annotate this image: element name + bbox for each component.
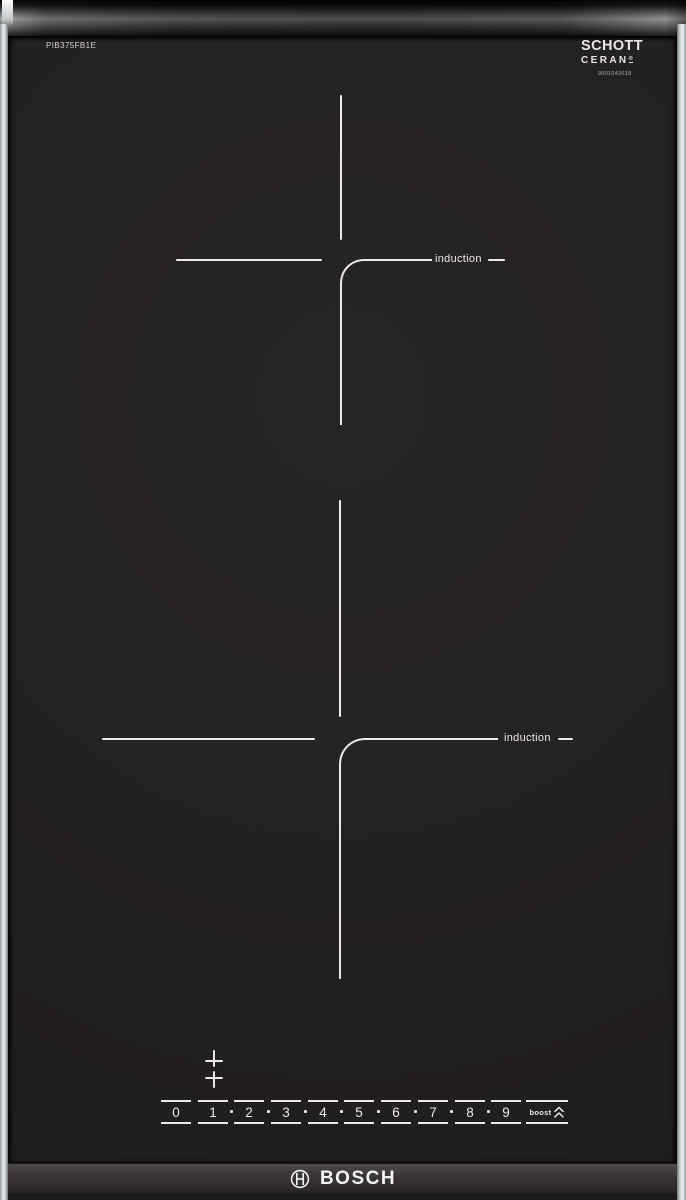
rear-zone-horizontal-left-line xyxy=(176,259,322,261)
registered-mark: ® xyxy=(629,56,633,64)
front-zone-label: induction xyxy=(504,733,551,744)
separator-dot xyxy=(450,1110,453,1113)
front-zone-horizontal-right-dash xyxy=(558,738,573,740)
level-key-8[interactable]: 8 xyxy=(453,1100,487,1124)
rear-zone-label: induction xyxy=(435,254,482,265)
level-key-1[interactable]: 1 xyxy=(196,1100,230,1124)
level-key-6[interactable]: 6 xyxy=(379,1100,413,1124)
model-number-label: PIB375FB1E xyxy=(46,41,96,50)
bosch-wordmark: BOSCH xyxy=(320,1168,396,1190)
boost-label: boost xyxy=(530,1108,552,1117)
rear-zone-vertical-top-line xyxy=(340,95,342,240)
separator-dot xyxy=(377,1110,380,1113)
timer-key[interactable] xyxy=(416,1048,448,1088)
separator-dot xyxy=(414,1110,417,1113)
bosch-induction-hob: PIB375FB1E SCHOTT CERAN® 9001043618 indu… xyxy=(0,0,686,1200)
serial-number-label: 9001043618 xyxy=(598,71,632,77)
schott-ceran-logo: SCHOTT CERAN® xyxy=(581,39,641,66)
separator-dot xyxy=(487,1110,490,1113)
front-zone-corner-line xyxy=(339,738,498,979)
front-zone-vertical-top-line xyxy=(339,500,341,717)
left-trim xyxy=(0,24,8,1200)
level-key-9[interactable]: 9 xyxy=(489,1100,523,1124)
rear-zone-horizontal-right-dash xyxy=(488,259,505,261)
top-trim xyxy=(0,0,686,36)
level-key-2[interactable]: 2 xyxy=(232,1100,266,1124)
zone-select-right-key[interactable] xyxy=(458,1046,486,1092)
glass-surface xyxy=(8,36,677,1163)
separator-dot xyxy=(230,1110,233,1113)
boost-button[interactable]: boost xyxy=(525,1100,569,1124)
bottom-trim: BOSCH xyxy=(8,1163,677,1194)
right-trim xyxy=(677,24,686,1200)
level-key-0[interactable]: 0 xyxy=(159,1100,193,1124)
rear-zone-corner-line xyxy=(340,259,432,425)
schott-logo-line1: SCHOTT xyxy=(581,39,641,54)
level-key-3[interactable]: 3 xyxy=(269,1100,303,1124)
level-key-5[interactable]: 5 xyxy=(342,1100,376,1124)
bosch-symbol-icon xyxy=(289,1168,311,1190)
bottom-edge xyxy=(8,1193,677,1200)
level-key-7[interactable]: 7 xyxy=(416,1100,450,1124)
separator-dot xyxy=(340,1110,343,1113)
separator-dot xyxy=(267,1110,270,1113)
zone-select-left-key[interactable] xyxy=(200,1046,228,1092)
double-chevron-up-icon xyxy=(554,1106,564,1118)
power-button[interactable] xyxy=(113,1098,161,1126)
front-zone-horizontal-left-line xyxy=(102,738,315,740)
schott-logo-line2: CERAN® xyxy=(581,56,641,66)
level-key-4[interactable]: 4 xyxy=(306,1100,340,1124)
separator-dot xyxy=(304,1110,307,1113)
top-left-highlight xyxy=(2,0,13,26)
